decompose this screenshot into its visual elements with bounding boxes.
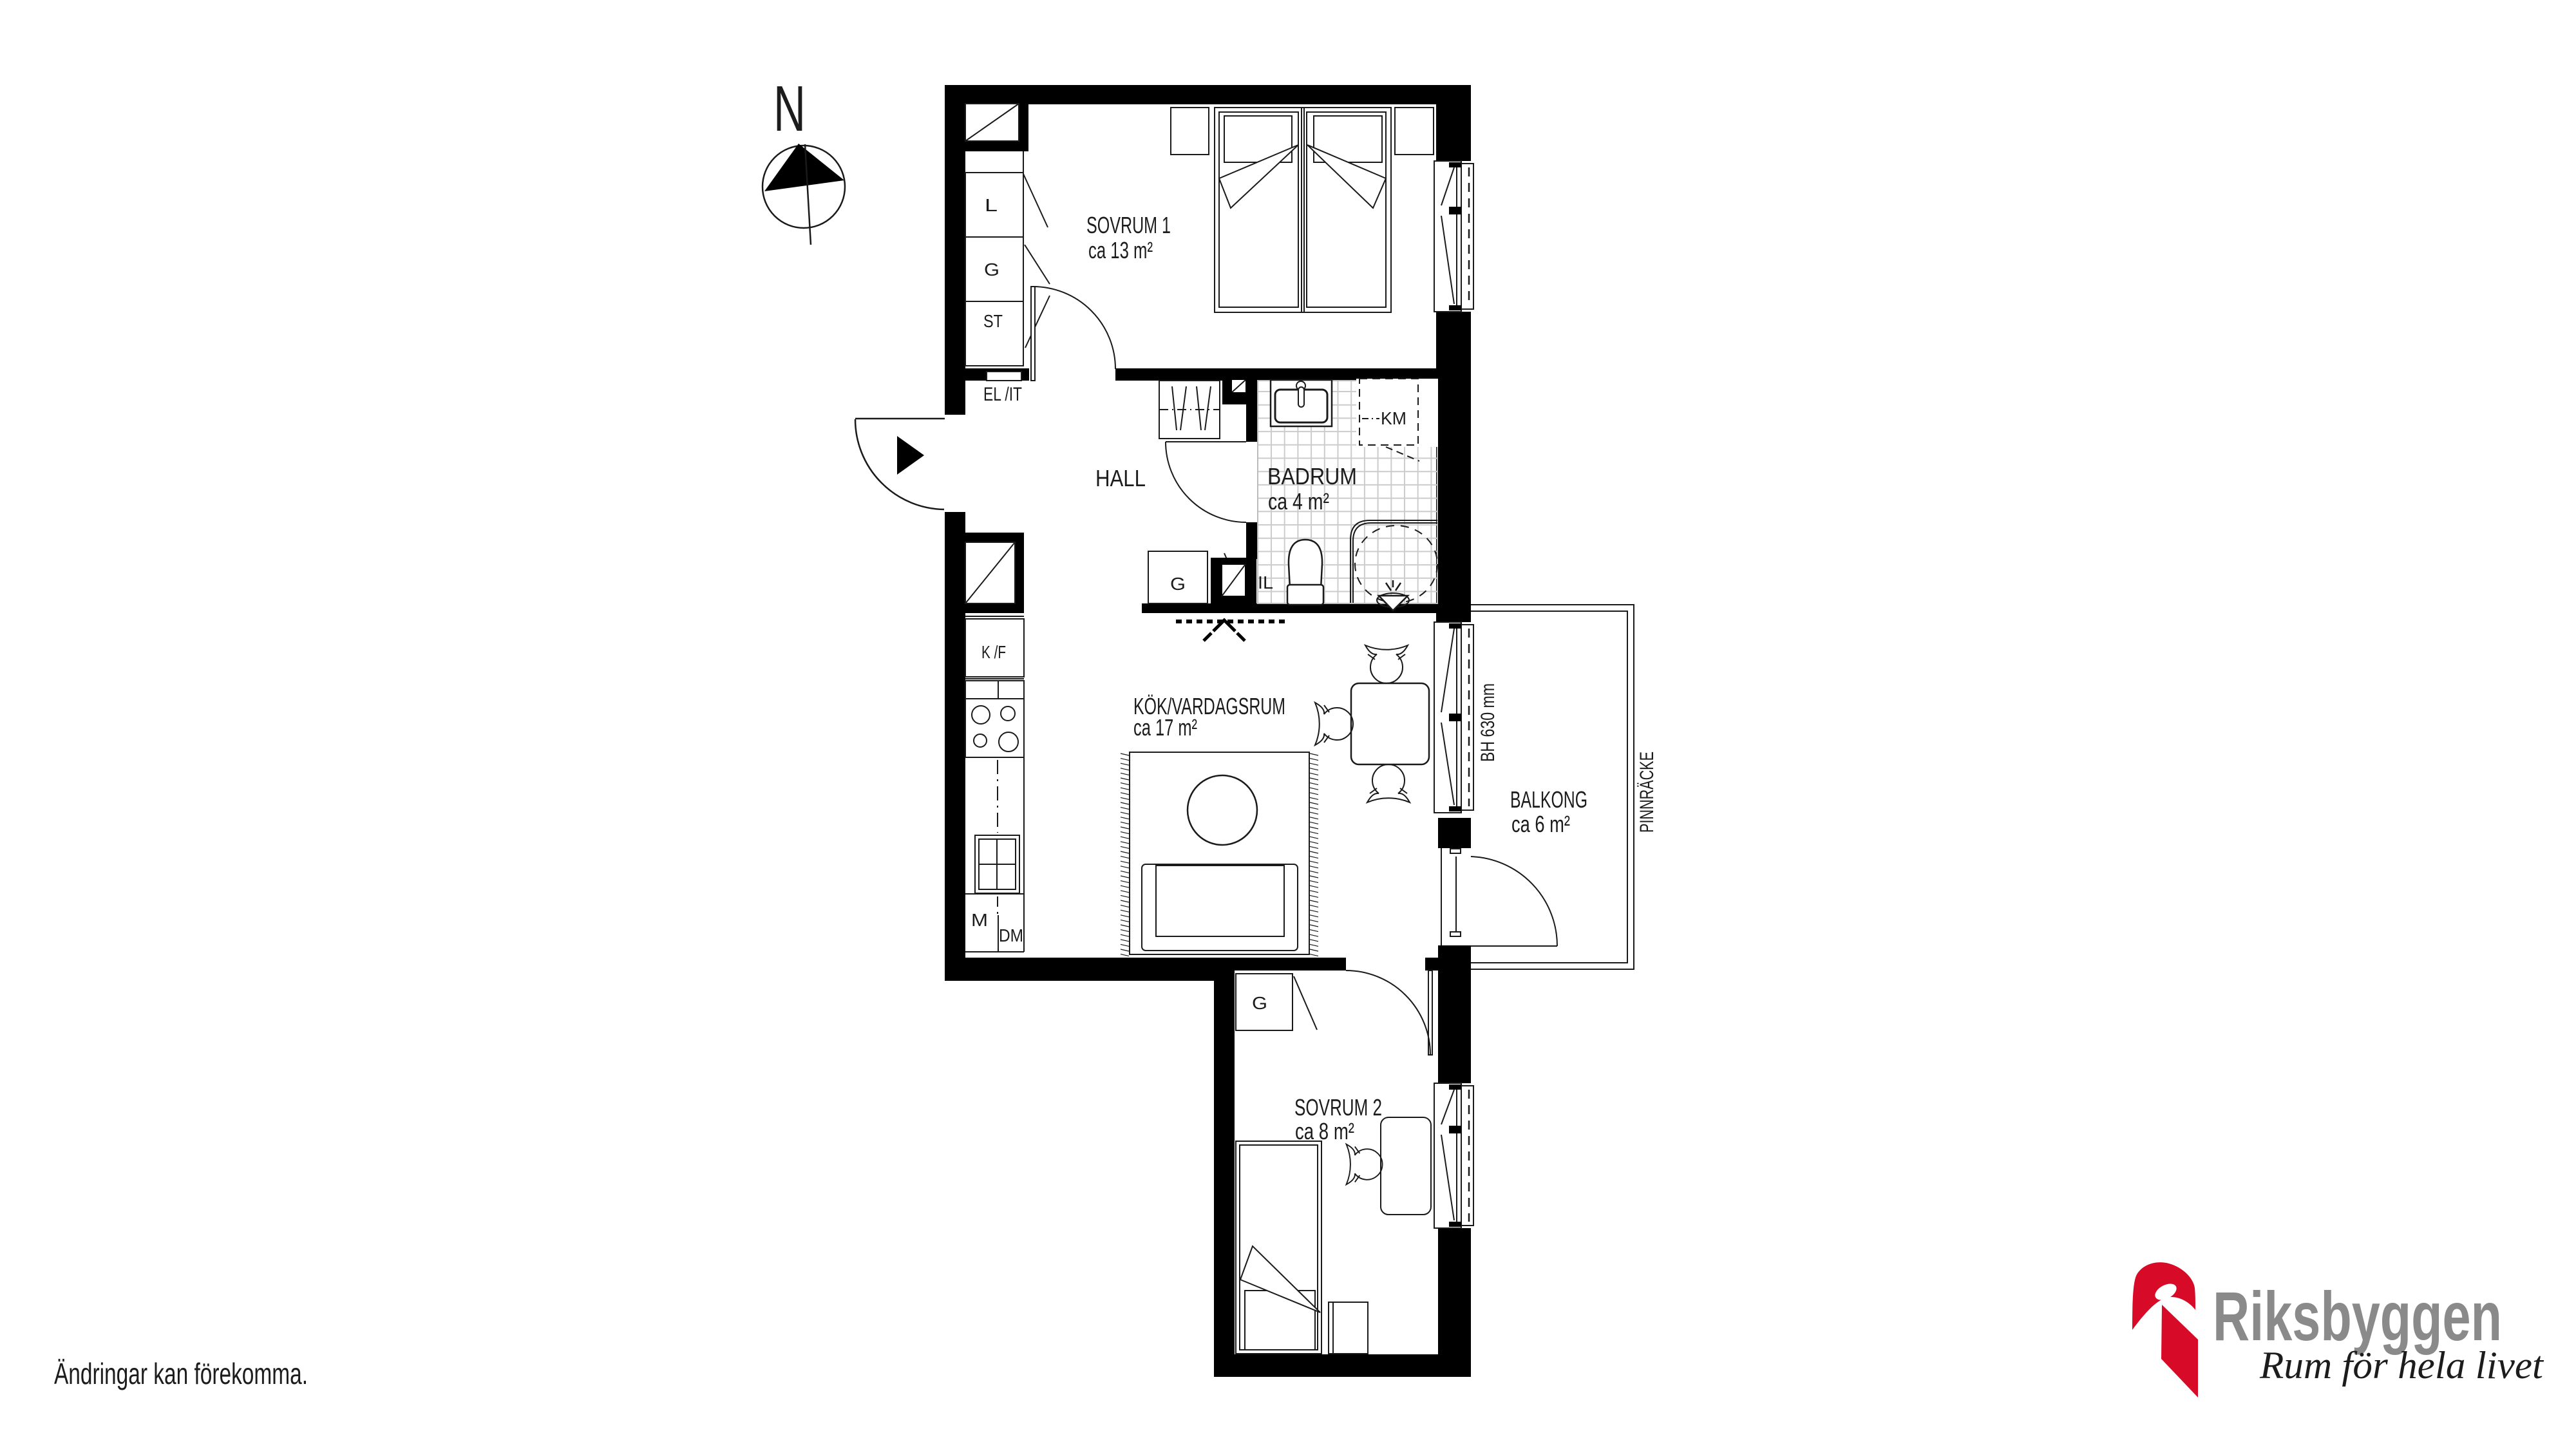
svg-text:M: M	[971, 910, 988, 930]
svg-text:BH 630 mm: BH 630 mm	[1477, 683, 1499, 762]
svg-text:L: L	[985, 195, 998, 215]
svg-text:BALKONG: BALKONG	[1510, 786, 1587, 813]
svg-text:DM: DM	[999, 925, 1023, 945]
svg-text:K /F: K /F	[981, 642, 1006, 662]
svg-text:G: G	[1170, 574, 1186, 594]
svg-text:ca 6 m²: ca 6 m²	[1511, 811, 1570, 837]
svg-text:ca 4 m²: ca 4 m²	[1268, 488, 1329, 515]
svg-text:G: G	[984, 260, 999, 279]
svg-text:IL: IL	[1258, 573, 1273, 592]
svg-text:SOVRUM 1: SOVRUM 1	[1086, 212, 1171, 238]
svg-text:ca 8 m²: ca 8 m²	[1295, 1118, 1354, 1144]
svg-text:KM: KM	[1381, 408, 1406, 428]
svg-text:G: G	[1252, 993, 1267, 1013]
svg-text:Ändringar kan förekomma.: Ändringar kan förekomma.	[54, 1357, 308, 1390]
svg-text:Riksbyggen: Riksbyggen	[2213, 1277, 2502, 1355]
svg-text:ca 17 m²: ca 17 m²	[1133, 714, 1197, 741]
svg-text:ca 13 m²: ca 13 m²	[1088, 237, 1153, 263]
svg-text:PINNRÄCKE: PINNRÄCKE	[1636, 752, 1658, 833]
svg-text:BADRUM: BADRUM	[1267, 463, 1357, 489]
svg-text:N: N	[773, 73, 806, 145]
svg-text:EL /IT: EL /IT	[983, 384, 1022, 405]
svg-text:SOVRUM 2: SOVRUM 2	[1294, 1094, 1382, 1121]
svg-text:ST: ST	[983, 311, 1003, 331]
svg-text:HALL: HALL	[1095, 465, 1146, 491]
svg-text:Rum för hela livet: Rum för hela livet	[2259, 1344, 2544, 1387]
